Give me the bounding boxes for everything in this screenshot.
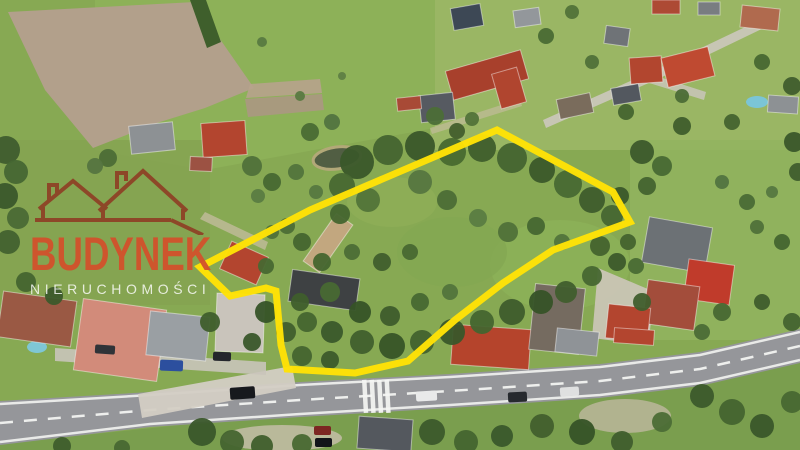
tree bbox=[373, 253, 391, 271]
tree bbox=[321, 321, 343, 343]
tree bbox=[618, 104, 634, 120]
swimming-pool bbox=[746, 96, 768, 108]
house-roof-grey bbox=[146, 311, 210, 361]
tree bbox=[257, 37, 267, 47]
tree bbox=[379, 333, 405, 359]
tree bbox=[243, 333, 261, 351]
tree bbox=[565, 5, 579, 19]
tree bbox=[675, 89, 689, 103]
tree bbox=[45, 287, 63, 305]
tree bbox=[719, 399, 745, 425]
tree bbox=[291, 293, 309, 311]
tree bbox=[713, 303, 731, 321]
tree bbox=[188, 418, 216, 446]
house-roof bbox=[513, 7, 541, 27]
tree bbox=[295, 91, 305, 101]
house-roof-red bbox=[614, 328, 655, 346]
tree bbox=[766, 186, 778, 198]
tree bbox=[579, 187, 605, 213]
tree bbox=[633, 293, 651, 311]
car bbox=[560, 386, 580, 396]
tree bbox=[7, 207, 29, 229]
house-roof bbox=[129, 122, 176, 154]
tree bbox=[437, 190, 457, 210]
tree bbox=[344, 244, 360, 260]
house-roof bbox=[698, 2, 720, 15]
tree bbox=[638, 177, 656, 195]
tree bbox=[313, 253, 331, 271]
house-roof bbox=[767, 95, 798, 114]
tree bbox=[715, 175, 729, 189]
house-roof-tan bbox=[740, 5, 780, 31]
house-roof bbox=[604, 25, 630, 46]
tree bbox=[774, 234, 790, 250]
tree bbox=[402, 244, 418, 260]
car bbox=[416, 390, 437, 401]
tree bbox=[292, 346, 312, 366]
tree bbox=[373, 135, 403, 165]
car bbox=[95, 344, 116, 354]
tree bbox=[258, 258, 274, 274]
tree bbox=[321, 351, 339, 369]
shed-roof bbox=[190, 156, 213, 171]
tree bbox=[293, 233, 311, 251]
tree bbox=[297, 312, 317, 332]
tree bbox=[739, 194, 755, 210]
tree bbox=[4, 160, 28, 184]
tree bbox=[538, 28, 554, 44]
car bbox=[160, 360, 183, 372]
tree bbox=[555, 281, 577, 303]
tree bbox=[750, 414, 774, 438]
shed-roof-red bbox=[396, 96, 421, 111]
car bbox=[315, 438, 332, 447]
aerial-photo: BUDYNEK NIERUCHOMOŚCI bbox=[0, 0, 800, 450]
tree bbox=[324, 114, 340, 130]
tree bbox=[491, 425, 513, 447]
tree bbox=[380, 306, 400, 326]
aerial-scene bbox=[0, 0, 800, 450]
tree bbox=[569, 419, 595, 445]
tree bbox=[255, 301, 277, 323]
tree bbox=[200, 312, 220, 332]
car bbox=[213, 352, 231, 362]
tree bbox=[498, 222, 518, 242]
house-roof-brownred bbox=[642, 280, 700, 331]
tree bbox=[630, 140, 654, 164]
car bbox=[314, 426, 331, 435]
tree bbox=[652, 412, 672, 432]
building-roof-dark bbox=[357, 416, 413, 450]
tree bbox=[301, 123, 319, 141]
longhouse-roof-brown bbox=[0, 291, 77, 347]
tree bbox=[442, 284, 458, 300]
tree bbox=[690, 384, 714, 408]
tree bbox=[449, 123, 465, 139]
house-roof-red bbox=[201, 121, 247, 158]
tree bbox=[242, 156, 262, 176]
tree bbox=[529, 290, 553, 314]
tree bbox=[419, 419, 445, 445]
tree bbox=[330, 204, 350, 224]
tree bbox=[408, 170, 432, 194]
tree bbox=[754, 294, 770, 310]
house-roof-red bbox=[652, 0, 680, 14]
car bbox=[230, 386, 256, 400]
tree bbox=[530, 414, 554, 438]
house-roof-red bbox=[629, 56, 663, 84]
tree bbox=[724, 114, 740, 130]
tree bbox=[411, 293, 429, 311]
house-roof-dark bbox=[450, 4, 483, 31]
tree bbox=[470, 310, 494, 334]
tree bbox=[585, 55, 599, 69]
tree bbox=[338, 72, 346, 80]
tree bbox=[309, 185, 323, 199]
tree bbox=[465, 112, 479, 126]
tree bbox=[673, 117, 691, 135]
tree bbox=[754, 54, 770, 70]
tree bbox=[608, 253, 626, 271]
tree bbox=[350, 330, 374, 354]
tree bbox=[349, 301, 371, 323]
tree bbox=[469, 209, 487, 227]
tree bbox=[320, 282, 340, 302]
tree bbox=[16, 272, 36, 292]
tree bbox=[750, 220, 764, 234]
tree bbox=[263, 173, 281, 191]
tree bbox=[251, 189, 265, 203]
tree bbox=[288, 164, 304, 180]
tree bbox=[426, 107, 444, 125]
tree bbox=[582, 266, 602, 286]
car bbox=[508, 392, 527, 403]
tree bbox=[499, 299, 525, 325]
tree bbox=[87, 158, 103, 174]
tree bbox=[620, 234, 636, 250]
tree bbox=[694, 324, 710, 340]
house-roof bbox=[555, 328, 599, 356]
tree bbox=[527, 217, 545, 235]
tree bbox=[652, 156, 672, 176]
tree bbox=[628, 258, 644, 274]
